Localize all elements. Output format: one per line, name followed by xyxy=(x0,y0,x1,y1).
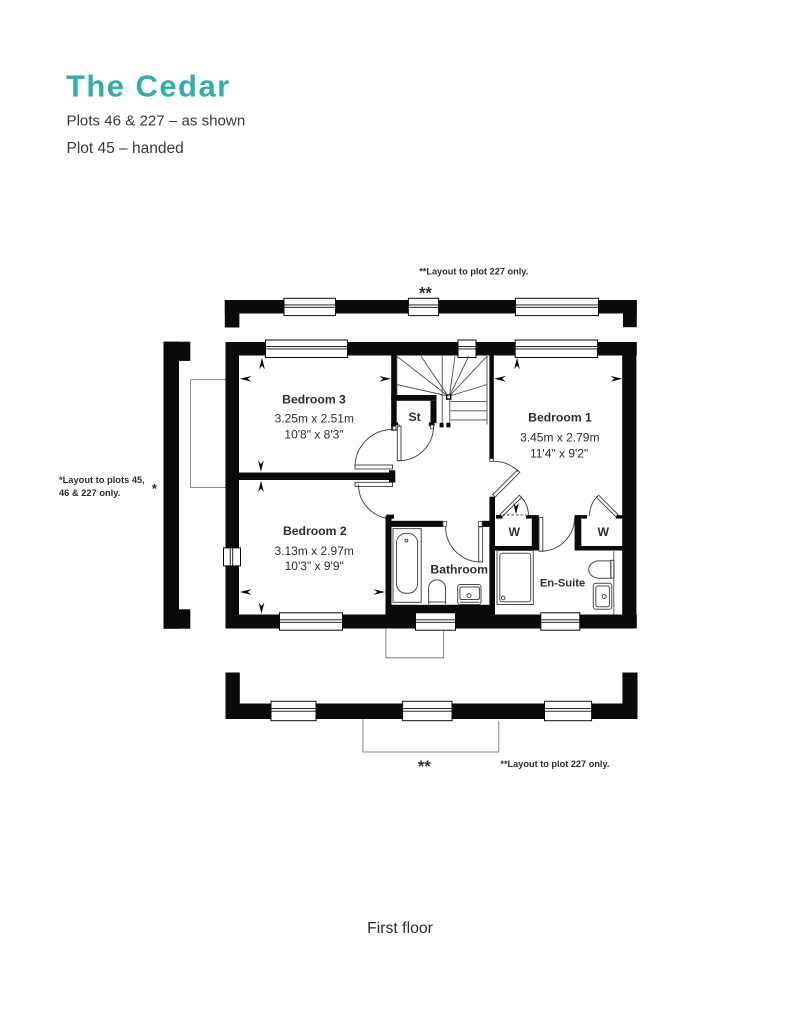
svg-text:Bathroom: Bathroom xyxy=(430,563,488,577)
svg-text:The Cedar: The Cedar xyxy=(66,69,231,104)
svg-text:Bedroom 2: Bedroom 2 xyxy=(283,524,347,538)
svg-text:3.25m x 2.51m: 3.25m x 2.51m xyxy=(275,412,354,426)
svg-text:46 & 227 only.: 46 & 227 only. xyxy=(59,488,120,498)
svg-text:W: W xyxy=(508,525,520,539)
svg-text:Bedroom 3: Bedroom 3 xyxy=(282,392,346,406)
svg-text:Plot 45 – handed: Plot 45 – handed xyxy=(67,140,184,157)
svg-text:En-Suite: En-Suite xyxy=(540,577,585,589)
svg-text:St: St xyxy=(409,410,421,424)
svg-text:3.13m x 2.97m: 3.13m x 2.97m xyxy=(275,544,354,558)
svg-text:First floor: First floor xyxy=(367,920,433,937)
svg-text:*: * xyxy=(152,481,158,496)
svg-text:**: ** xyxy=(418,758,431,776)
svg-text:W: W xyxy=(597,525,609,539)
svg-text:*Layout to plots 45,: *Layout to plots 45, xyxy=(59,475,145,485)
svg-text:11'4" x 9'2": 11'4" x 9'2" xyxy=(530,446,588,460)
svg-text:Bedroom 1: Bedroom 1 xyxy=(528,411,592,425)
svg-text:10'8" x 8'3": 10'8" x 8'3" xyxy=(284,428,343,442)
svg-text:**Layout to plot 227 only.: **Layout to plot 227 only. xyxy=(500,759,609,769)
svg-text:Plots 46 & 227 – as shown: Plots 46 & 227 – as shown xyxy=(67,113,246,130)
svg-text:10'3" x 9'9": 10'3" x 9'9" xyxy=(285,559,344,573)
svg-text:**Layout to plot 227 only.: **Layout to plot 227 only. xyxy=(419,267,528,277)
svg-text:3.45m x 2.79m: 3.45m x 2.79m xyxy=(520,431,599,445)
